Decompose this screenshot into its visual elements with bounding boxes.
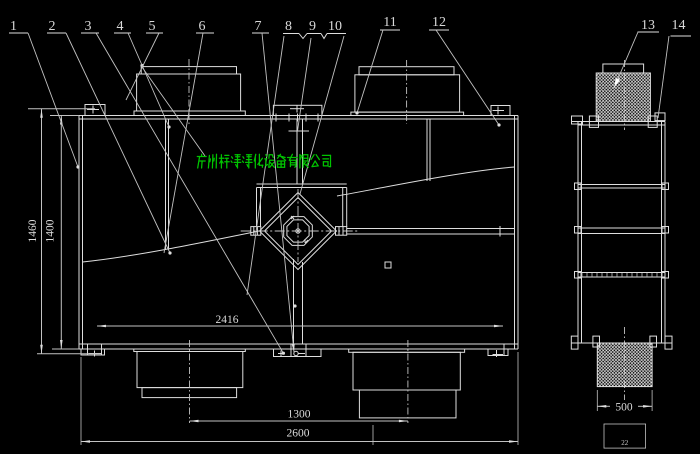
svg-text:14: 14 (672, 18, 686, 33)
svg-text:1400: 1400 (45, 219, 57, 242)
svg-text:2: 2 (49, 19, 56, 34)
svg-text:5: 5 (149, 19, 156, 34)
svg-text:2600: 2600 (287, 428, 310, 440)
svg-text:2416: 2416 (216, 314, 239, 326)
svg-text:1460: 1460 (27, 219, 39, 242)
svg-text:7: 7 (255, 19, 262, 34)
svg-text:6: 6 (199, 19, 206, 34)
svg-text:22: 22 (621, 439, 629, 447)
svg-text:500: 500 (615, 402, 633, 414)
svg-text:4: 4 (117, 19, 124, 34)
svg-text:13: 13 (641, 18, 655, 33)
svg-text:12: 12 (432, 15, 446, 30)
svg-text:1300: 1300 (288, 409, 311, 421)
svg-text:9: 9 (309, 19, 316, 34)
svg-text:1: 1 (10, 19, 17, 34)
svg-text:11: 11 (383, 15, 396, 30)
svg-text:8: 8 (285, 19, 292, 34)
svg-text:10: 10 (328, 19, 342, 34)
svg-text:3: 3 (85, 19, 92, 34)
